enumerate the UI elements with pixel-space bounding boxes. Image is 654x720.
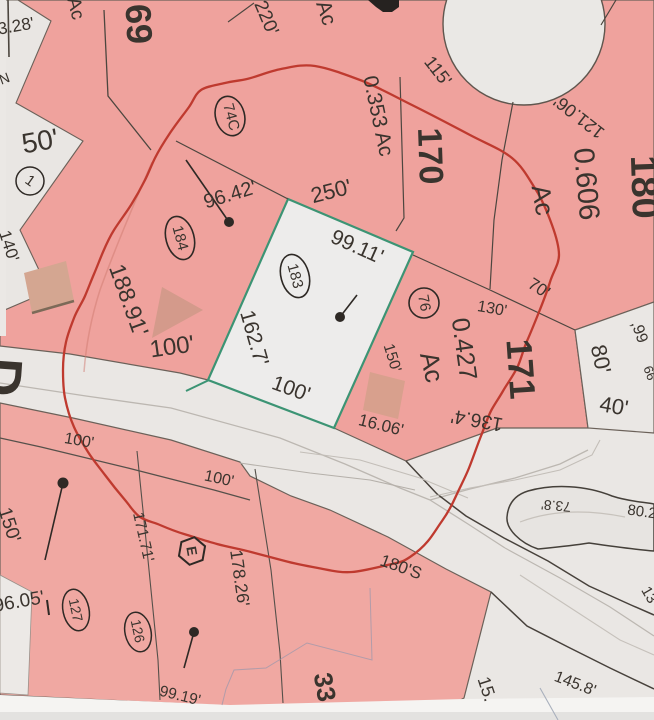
svg-text:40': 40'	[598, 391, 631, 421]
svg-text:180: 180	[622, 155, 654, 220]
svg-text:73.8': 73.8'	[540, 497, 571, 516]
svg-text:0.606: 0.606	[567, 146, 605, 221]
svg-text:171: 171	[498, 338, 543, 401]
svg-text:170: 170	[410, 127, 450, 185]
svg-text:D: D	[0, 355, 33, 398]
svg-text:76: 76	[414, 293, 434, 312]
svg-text:69: 69	[117, 3, 160, 45]
svg-text:Ac: Ac	[526, 182, 561, 217]
svg-text:33: 33	[308, 670, 343, 704]
svg-text:50': 50'	[19, 123, 60, 160]
